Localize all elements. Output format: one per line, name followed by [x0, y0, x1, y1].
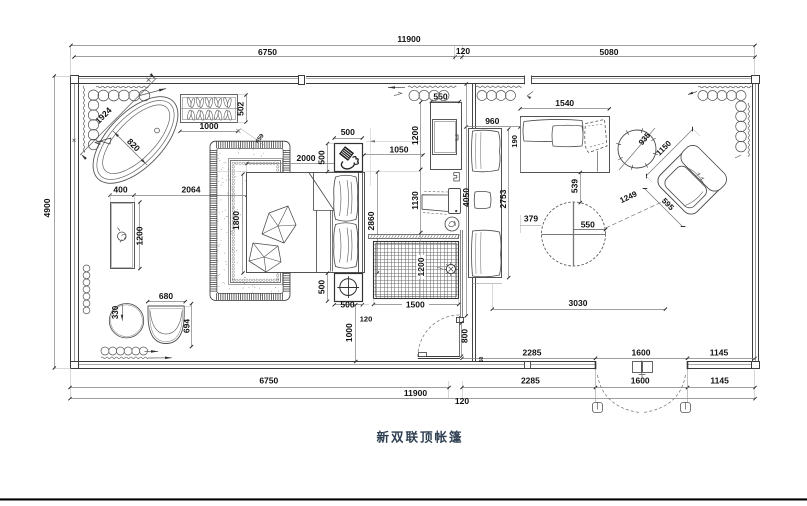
svg-text:4050: 4050: [461, 188, 471, 207]
svg-text:1200: 1200: [416, 257, 426, 276]
svg-text:1145: 1145: [710, 375, 729, 385]
svg-text:539: 539: [569, 179, 579, 193]
svg-text:400: 400: [113, 185, 127, 195]
svg-text:1800: 1800: [231, 211, 241, 230]
svg-text:4900: 4900: [42, 198, 52, 217]
svg-text:500: 500: [341, 127, 355, 137]
svg-text:330: 330: [111, 305, 120, 319]
svg-text:2285: 2285: [521, 375, 540, 385]
svg-text:5080: 5080: [600, 47, 619, 57]
svg-text:800: 800: [460, 329, 470, 343]
svg-text:1145: 1145: [710, 348, 729, 358]
svg-text:500: 500: [340, 300, 354, 310]
svg-text:1000: 1000: [344, 323, 354, 342]
svg-text:550: 550: [581, 219, 595, 229]
svg-text:1200: 1200: [135, 226, 145, 245]
svg-text:190: 190: [510, 135, 519, 148]
svg-text:680: 680: [159, 291, 173, 301]
svg-text:1050: 1050: [390, 145, 409, 155]
svg-text:2000: 2000: [297, 153, 316, 163]
svg-text:120: 120: [360, 315, 373, 324]
svg-text:2860: 2860: [366, 211, 376, 230]
svg-text:1500: 1500: [406, 299, 425, 309]
svg-text:11900: 11900: [404, 388, 427, 398]
svg-text:500: 500: [317, 280, 327, 294]
svg-text:2064: 2064: [182, 185, 201, 195]
svg-text:2285: 2285: [523, 348, 542, 358]
svg-text:新双联顶帐篷: 新双联顶帐篷: [376, 430, 463, 445]
svg-text:502: 502: [236, 101, 246, 115]
svg-text:120: 120: [455, 396, 469, 406]
svg-text:500: 500: [317, 150, 327, 164]
svg-text:6750: 6750: [258, 47, 277, 57]
svg-text:1600: 1600: [631, 375, 650, 385]
svg-text:1000: 1000: [200, 121, 219, 131]
svg-text:1540: 1540: [555, 98, 574, 108]
svg-text:1600: 1600: [632, 348, 651, 358]
svg-text:3030: 3030: [569, 298, 588, 308]
svg-text:6750: 6750: [259, 375, 278, 385]
svg-text:2753: 2753: [498, 189, 508, 208]
svg-text:50: 50: [479, 357, 485, 363]
svg-text:960: 960: [485, 116, 499, 126]
svg-text:694: 694: [181, 319, 191, 333]
svg-text:379: 379: [524, 214, 538, 224]
svg-text:1200: 1200: [410, 126, 420, 145]
svg-text:11900: 11900: [397, 34, 420, 44]
svg-text:1130: 1130: [410, 191, 420, 210]
svg-text:120: 120: [456, 46, 470, 56]
